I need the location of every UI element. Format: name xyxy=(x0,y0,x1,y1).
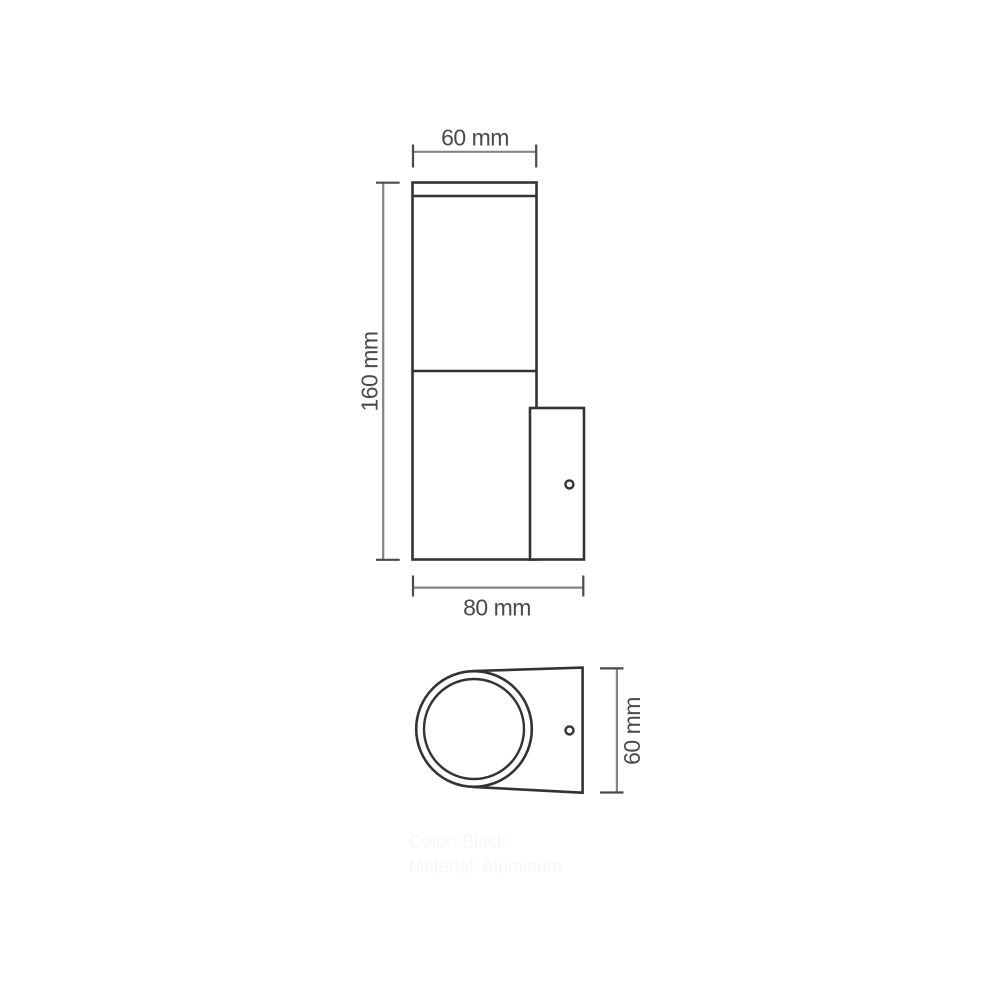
svg-text:160 mm: 160 mm xyxy=(357,331,383,411)
svg-text:Color: Black: Color: Black xyxy=(409,832,507,852)
svg-text:60 mm: 60 mm xyxy=(441,125,509,151)
svg-text:80 mm: 80 mm xyxy=(463,595,531,621)
svg-text:Material: Aluminum: Material: Aluminum xyxy=(409,857,562,877)
svg-text:60 mm: 60 mm xyxy=(619,697,645,765)
